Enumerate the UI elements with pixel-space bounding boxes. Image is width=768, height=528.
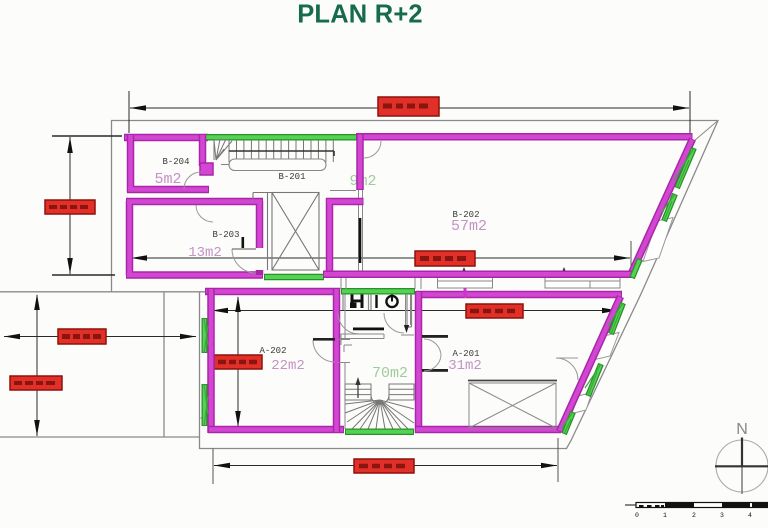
svg-text:31m2: 31m2 [448,358,482,374]
svg-text:1: 1 [663,512,667,519]
svg-text:B-203: B-203 [212,230,239,240]
svg-text:5m2: 5m2 [154,171,181,188]
svg-text:B-201: B-201 [278,172,305,182]
svg-text:0: 0 [635,512,639,519]
svg-text:B-204: B-204 [162,157,189,167]
svg-text:22m2: 22m2 [271,358,305,374]
svg-text:3: 3 [720,512,724,519]
svg-text:A-202: A-202 [259,346,286,356]
svg-text:70m2: 70m2 [372,365,408,382]
svg-text:2: 2 [692,512,696,519]
svg-text:13m2: 13m2 [188,245,222,261]
svg-text:57m2: 57m2 [451,218,487,235]
svg-text:PLAN R+2: PLAN R+2 [297,1,423,29]
svg-text:N: N [736,421,748,438]
svg-text:4: 4 [748,512,752,519]
